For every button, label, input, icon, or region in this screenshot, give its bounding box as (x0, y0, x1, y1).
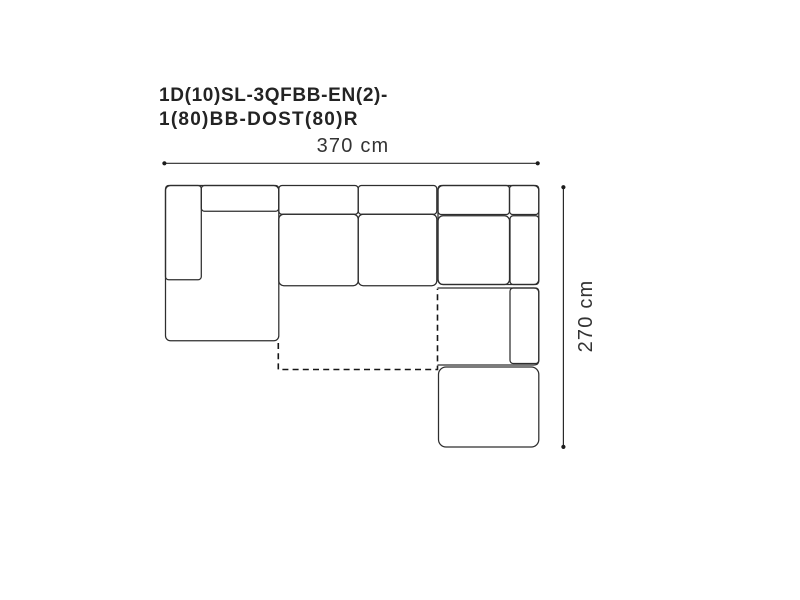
svg-text:1(80)BB-DOST(80)R: 1(80)BB-DOST(80)R (159, 109, 359, 130)
svg-text:1D(10)SL-3QFBB-EN(2)-: 1D(10)SL-3QFBB-EN(2)- (159, 85, 388, 106)
svg-text:370 cm: 370 cm (317, 135, 390, 157)
svg-text:270 cm: 270 cm (575, 280, 597, 353)
